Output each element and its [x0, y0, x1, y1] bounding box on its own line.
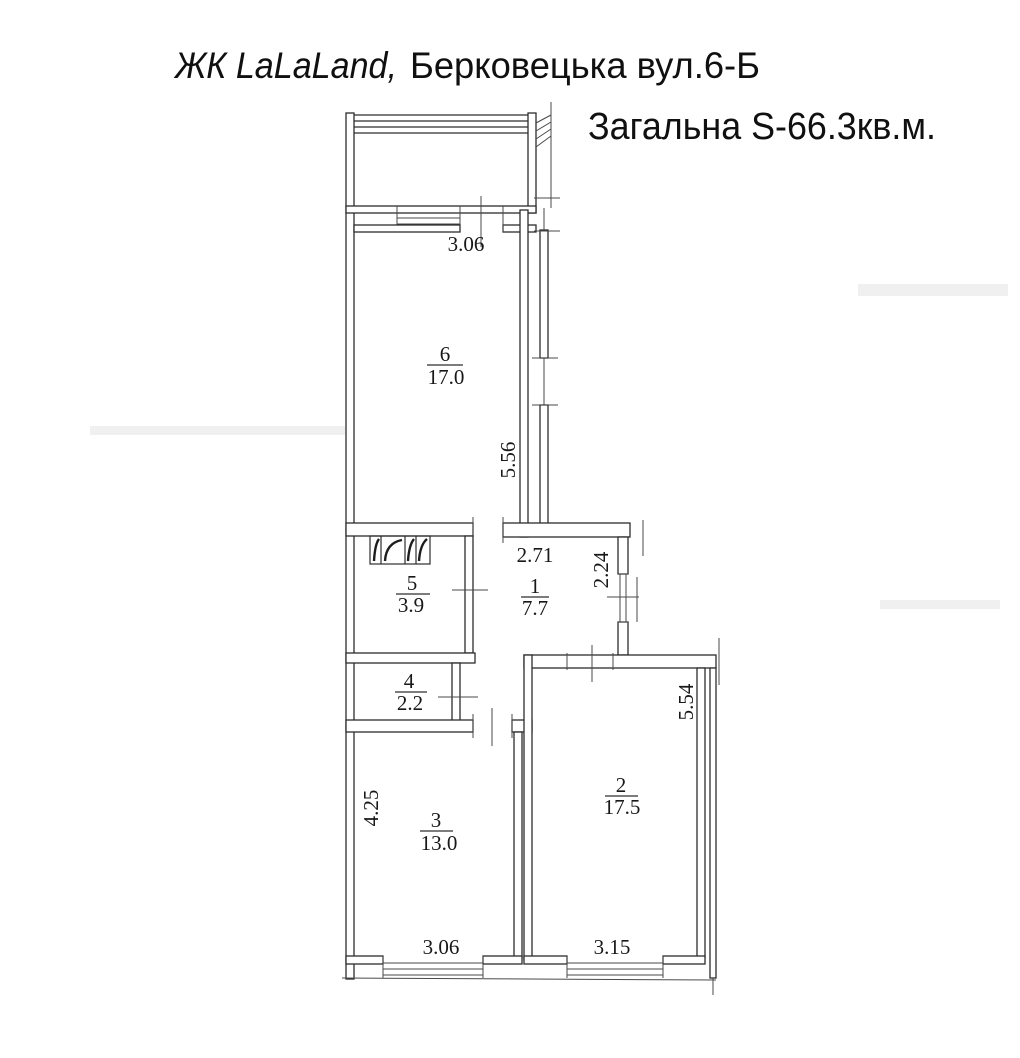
title-total-area: Загальна S-66.3кв.м. — [588, 106, 936, 148]
room-2-number: 2 — [616, 773, 627, 797]
wall-room4-top — [346, 653, 475, 663]
title-address: Берковецька вул.6-Б — [410, 45, 760, 86]
room-1-label: 1 7.7 — [521, 574, 549, 620]
dim-room2-depth: 5.54 — [674, 683, 698, 720]
room-3-label: 3 13.0 — [420, 808, 457, 855]
balcony-hatch — [536, 102, 551, 208]
wall-room3-right — [514, 732, 522, 958]
room-5-label: 5 3.9 — [396, 571, 430, 617]
hatch-line — [536, 115, 551, 123]
room-2-area: 17.5 — [604, 795, 641, 819]
wall-exterior-right-upper — [540, 405, 548, 525]
dim-room6-width: 3.06 — [448, 232, 485, 256]
scan-smudge — [858, 284, 1008, 296]
wall-hall-right — [618, 537, 628, 574]
wall-room3-bottom — [346, 956, 383, 964]
wall-room5-right — [465, 536, 473, 653]
wall-room6-top — [354, 225, 460, 232]
dim-room2-width: 3.15 — [594, 935, 631, 959]
room-4-label: 4 2.2 — [395, 669, 427, 715]
room-3-number: 3 — [431, 808, 442, 832]
room-1-area: 7.7 — [522, 596, 548, 620]
title-project: ЖК LaLaLand, — [173, 45, 397, 86]
room-6-area: 17.0 — [428, 365, 465, 389]
floor-plan: ЖК LaLaLand, Берковецька вул.6-Б Загальн… — [0, 0, 1020, 1058]
floor-plan-page: ЖК LaLaLand, Берковецька вул.6-Б Загальн… — [0, 0, 1020, 1058]
wall-exterior-left — [346, 113, 354, 979]
fixture-curve — [408, 539, 414, 561]
room-6-number: 6 — [440, 342, 451, 366]
dim-room3-depth: 4.25 — [359, 790, 383, 827]
scan-smudge — [90, 426, 345, 435]
room-1-number: 1 — [530, 574, 541, 598]
wall-room2-top — [524, 655, 716, 668]
window-room3 — [383, 956, 483, 978]
room-6-label: 6 17.0 — [427, 342, 464, 389]
wall-room6-bottom — [346, 523, 473, 536]
room-3-area: 13.0 — [421, 831, 458, 855]
dim-hall-width: 2.71 — [517, 543, 554, 567]
wall-room3-top — [346, 720, 473, 732]
fixture-curve — [419, 539, 427, 561]
dim-hall-depth: 2.24 — [589, 551, 613, 588]
wall-hall-top — [503, 523, 630, 537]
wall-balcony-bottom — [346, 206, 536, 213]
fixture-curve — [385, 540, 402, 561]
wall-room4-right — [452, 663, 460, 722]
wall-room6-right — [520, 210, 528, 537]
wall-room2-right — [697, 668, 705, 958]
wall-room2-bottom — [524, 956, 567, 964]
wall-exterior-right-lower — [710, 668, 716, 978]
wall-room2-bottom — [663, 956, 705, 964]
wall-hall-right — [618, 622, 628, 655]
room-5-number: 5 — [407, 571, 418, 595]
room-4-number: 4 — [404, 669, 415, 693]
fixture-curve — [374, 539, 379, 561]
room-4-area: 2.2 — [397, 691, 423, 715]
bathroom-fixture — [370, 536, 430, 564]
wall-exterior-right-upper — [540, 230, 548, 358]
wall-room3-bottom — [483, 956, 522, 964]
scan-smudge — [880, 600, 1000, 609]
window-room2 — [567, 956, 663, 978]
dim-room3-width: 3.06 — [423, 935, 460, 959]
hatch-line — [536, 122, 551, 131]
entry-door — [618, 574, 637, 622]
header: ЖК LaLaLand, Берковецька вул.6-Б Загальн… — [173, 45, 936, 148]
balcony-railing — [354, 115, 536, 133]
dim-room6-depth: 5.56 — [496, 442, 520, 479]
sill-line — [342, 978, 716, 980]
room-2-label: 2 17.5 — [604, 773, 641, 819]
room-5-area: 3.9 — [398, 593, 424, 617]
wall-room2-left — [524, 655, 532, 960]
